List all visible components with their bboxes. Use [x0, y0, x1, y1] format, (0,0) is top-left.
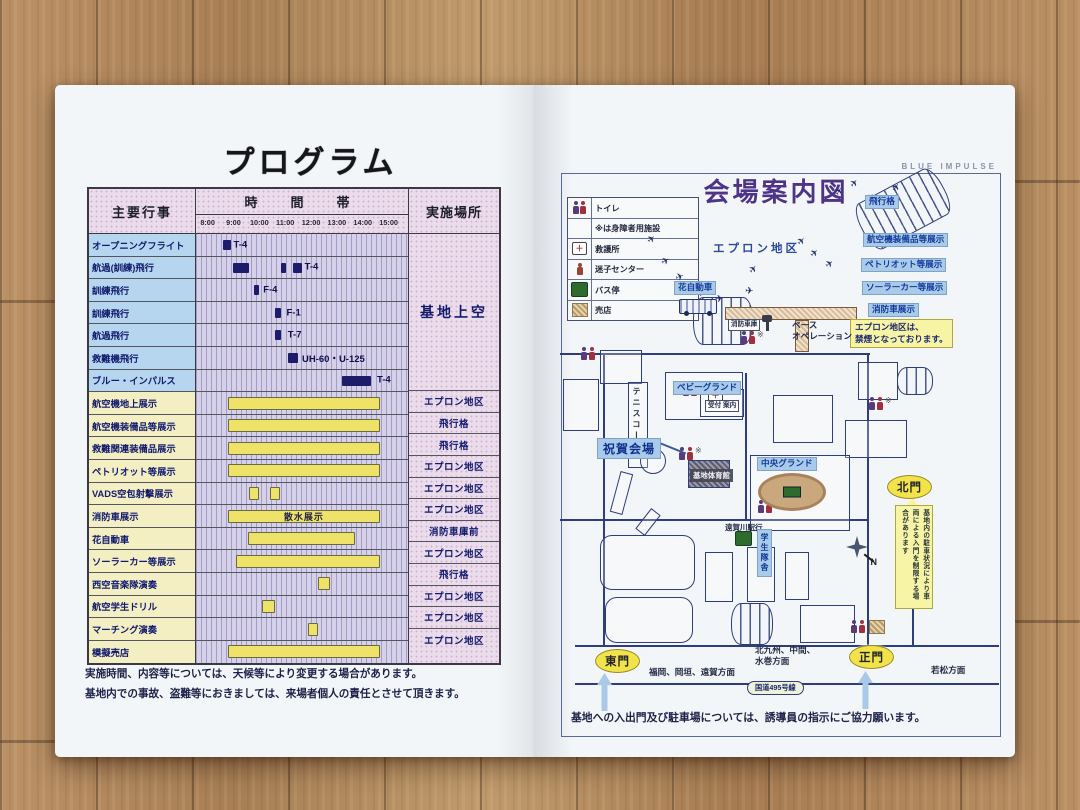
- compass-north-label: N: [871, 557, 878, 567]
- gantt-cell: T-4: [196, 257, 408, 280]
- track-infield-marker: [783, 487, 801, 498]
- program-footnotes: 実施時間、内容等については、天候等により変更する場合があります。 基地内での事故…: [85, 665, 525, 704]
- table-body: オープニングフライト航過(訓練)飛行訓練飛行訓練飛行航過飛行救難機飛行ブルー・イ…: [89, 234, 499, 663]
- toilet-icon: ※: [679, 447, 702, 460]
- map-building: [800, 605, 855, 643]
- gantt-cell: [196, 437, 408, 460]
- toilet-icon: [851, 620, 865, 633]
- disabled-access-mark: ※: [695, 447, 702, 455]
- event-label: VADS空包射撃展示: [89, 483, 195, 506]
- map-page: BLUE IMPULSE 会場案内図 トイレ※は身障者用施設＋救護所迷子センター…: [545, 157, 1007, 749]
- gantt-bar: [228, 645, 379, 658]
- map-bottom-note: 基地への入出門及び駐車場については、誘導員の指示にご協力願います。: [571, 709, 999, 725]
- time-tick: 8:00: [200, 218, 215, 227]
- map-label: エプロン地区: [713, 240, 800, 256]
- gantt-bar: [293, 263, 302, 273]
- program-page: プログラム 主要行事 時 間 帯 8:009:0010:0011:0012:00…: [83, 135, 538, 747]
- airplane-icon: ✈: [809, 247, 822, 260]
- map-label: 祝賀会場: [597, 438, 661, 459]
- time-tick: 12:00: [302, 218, 321, 227]
- aircraft-note: T-4: [305, 262, 319, 273]
- location-cell: エプロン地区: [409, 478, 499, 500]
- gantt-bar: [254, 285, 259, 295]
- person-male-glyph: [869, 397, 875, 410]
- person-male-glyph: [581, 347, 587, 360]
- map-label: 航空機装備品等展示: [863, 233, 948, 247]
- gantt-bar: [249, 487, 259, 500]
- person-female-glyph: [877, 397, 883, 410]
- location-cell: 飛行格: [409, 413, 499, 435]
- gantt-bar: [275, 330, 281, 340]
- gantt-cell: F-1: [196, 302, 408, 325]
- map-label: 国道495号線: [747, 681, 804, 695]
- event-label: ソーラーカー等展示: [89, 550, 195, 573]
- map-building: [705, 552, 733, 602]
- map-label: ソーラーカー等展示: [862, 281, 947, 295]
- location-cell: 飛行格: [409, 564, 499, 586]
- map-label: 基地内の駐車状況により車両による入門を制限する場合があります: [895, 505, 933, 609]
- gantt-bar: [281, 263, 286, 273]
- gantt-bar: [318, 577, 331, 590]
- compass-icon: N: [843, 533, 877, 567]
- gantt-cell: [196, 460, 408, 483]
- gantt-cell: [196, 550, 408, 573]
- airplane-icon: ✈: [849, 178, 862, 191]
- map-building: [773, 395, 833, 443]
- water-tower-icon: [761, 315, 773, 331]
- event-label: 航空機装備品等展示: [89, 415, 195, 438]
- map-label: ベース オペレーション: [792, 320, 852, 342]
- event-label: 救難機飛行: [89, 347, 195, 370]
- event-label: 模擬売店: [89, 641, 195, 664]
- airplane-icon: ✈: [660, 256, 672, 269]
- gantt-cell: [196, 618, 408, 641]
- program-booklet: プログラム 主要行事 時 間 帯 8:009:0010:0011:0012:00…: [55, 85, 1015, 757]
- time-tick: 10:00: [250, 218, 269, 227]
- gantt-cell: [196, 392, 408, 415]
- gantt-cell: [196, 415, 408, 438]
- aircraft-note: T-7: [288, 330, 302, 341]
- program-table: 主要行事 時 間 帯 8:009:0010:0011:0012:0013:001…: [87, 187, 501, 665]
- airplane-icon: ✈: [834, 186, 847, 198]
- disabled-access-mark: ※: [757, 331, 764, 339]
- person-female-glyph: [749, 331, 755, 344]
- gantt-bar: [262, 600, 275, 613]
- event-label: 消防車展示: [89, 505, 195, 528]
- time-tick: 11:00: [276, 218, 294, 227]
- floor-plank-joint: [0, 740, 55, 743]
- person-male-glyph: [741, 331, 747, 344]
- event-label: 花自動車: [89, 528, 195, 551]
- event-label: ペトリオット等展示: [89, 460, 195, 483]
- event-label: オープニングフライト: [89, 234, 195, 257]
- aircraft-note: F-1: [286, 307, 300, 318]
- location-cell: エプロン地区: [409, 391, 499, 413]
- gantt-bar: [228, 397, 379, 410]
- event-label: 航過飛行: [89, 324, 195, 347]
- gantt-cell: [196, 483, 408, 506]
- map-label: 学生隊舎: [757, 529, 772, 577]
- map-label: 花自動車: [674, 281, 716, 295]
- gantt-cell: [196, 573, 408, 596]
- airplane-icon: ✈: [824, 258, 837, 271]
- gantt-bar: [270, 487, 280, 500]
- location-cell: エプロン地区: [409, 629, 499, 651]
- gantt-bar: [228, 419, 379, 432]
- location-cell: エプロン地区: [409, 456, 499, 478]
- map-building: [610, 471, 633, 515]
- bar-inline-label: 散水展示: [284, 510, 324, 523]
- event-label: 訓練飛行: [89, 302, 195, 325]
- airplane-icon: ✈: [646, 233, 659, 246]
- toilet-icon: ※: [869, 397, 892, 410]
- time-tick: 15:00: [379, 218, 398, 227]
- gate-entry-arrow: [858, 671, 873, 709]
- map-building: [605, 597, 693, 643]
- gantt-bar: [228, 464, 379, 477]
- table-header: 主要行事 時 間 帯 8:009:0010:0011:0012:0013:001…: [89, 189, 499, 234]
- floor-plank-joint: [0, 300, 55, 303]
- gantt-cell: [196, 528, 408, 551]
- gantt-cell: [196, 641, 408, 664]
- road-line: [603, 355, 605, 647]
- shop-icon: [869, 620, 885, 634]
- map-label: 若松方面: [931, 665, 965, 676]
- gate-badge: 正門: [849, 645, 894, 669]
- person-female-glyph: [859, 620, 865, 633]
- map-label: 福岡、岡垣、遠賀方面: [649, 667, 735, 678]
- floor-plank-joint: [1015, 180, 1080, 183]
- toilet-icon: [581, 347, 595, 360]
- header-time-band: 時 間 帯: [196, 189, 408, 215]
- gantt-bar: [248, 532, 355, 545]
- gate-badge: 東門: [595, 649, 640, 673]
- map-building: [845, 420, 907, 458]
- disabled-access-mark: ※: [885, 397, 892, 405]
- map-label: ベビーグランド: [673, 381, 741, 395]
- event-label: ブルー・インパルス: [89, 370, 195, 393]
- toilet-icon: ※: [741, 331, 764, 344]
- gantt-cell: T-4: [196, 370, 408, 393]
- event-label: 航過(訓練)飛行: [89, 257, 195, 280]
- airplane-icon: ✈: [745, 287, 753, 297]
- header-main-events: 主要行事: [89, 189, 196, 233]
- gate-badge: 北門: [887, 475, 932, 499]
- map-label: 基地体育館: [690, 469, 733, 482]
- gantt-cell: F-4: [196, 279, 408, 302]
- event-label: 航空学生ドリル: [89, 596, 195, 619]
- time-tick: 9:00: [226, 218, 241, 227]
- location-cell: 基地上空: [409, 234, 499, 391]
- gantt-bar: [288, 353, 298, 363]
- gantt-cell: UH-60・U-125: [196, 347, 408, 370]
- time-axis: 8:009:0010:0011:0012:0013:0014:0015:00: [196, 215, 408, 233]
- person-female-glyph: [687, 447, 693, 460]
- person-male-glyph: [851, 620, 857, 633]
- gantt-bar: [233, 263, 249, 273]
- map-building: [600, 350, 642, 384]
- map-building: [858, 362, 898, 400]
- gantt-bar: [342, 376, 370, 386]
- location-cell: 消防車庫前: [409, 521, 499, 543]
- gantt-bar: [223, 240, 231, 250]
- location-cell: エプロン地区: [409, 607, 499, 629]
- gantt-bar: [275, 308, 281, 318]
- map-building: [635, 508, 660, 536]
- event-label: 救難関連装備品展示: [89, 437, 195, 460]
- gantt-cell: [196, 596, 408, 619]
- hangar-building: [897, 367, 933, 395]
- map-building: [563, 379, 599, 431]
- gantt-bar: 散水展示: [228, 510, 379, 523]
- person-female-glyph: [589, 347, 595, 360]
- location-cell: 飛行格: [409, 434, 499, 456]
- aircraft-note: UH-60・U-125: [302, 351, 365, 365]
- event-label: マーチング演奏: [89, 618, 195, 641]
- map-label: 中央グランド: [757, 457, 817, 471]
- aircraft-note: T-4: [377, 375, 391, 386]
- gantt-cell: T-7: [196, 324, 408, 347]
- parade-float-icon: [679, 299, 717, 314]
- location-cell: エプロン地区: [409, 586, 499, 608]
- event-label: 訓練飛行: [89, 279, 195, 302]
- road-line: [745, 373, 747, 519]
- gantt-bar: [308, 623, 317, 636]
- program-title: プログラム: [83, 137, 538, 182]
- event-label: 西空音楽隊演奏: [89, 573, 195, 596]
- location-cell: エプロン地区: [409, 499, 499, 521]
- event-label: 航空機地上展示: [89, 392, 195, 415]
- gantt-bar: [236, 555, 379, 568]
- time-tick: 13:00: [328, 218, 347, 227]
- map-layer: ✈✈✈✈✈✈✈✈✈✈✈✈✈✈※※※※＋Nエプロン地区飛行格航空機装備品等展示ペト…: [545, 157, 1007, 749]
- bus-stop-icon: [735, 531, 752, 546]
- header-location: 実施場所: [409, 189, 499, 233]
- map-label: エプロン地区は、 禁煙となっております。: [850, 319, 953, 348]
- aircraft-note: F-4: [263, 284, 277, 295]
- map-label: 飛行格: [865, 195, 899, 209]
- gantt-cell: 散水展示: [196, 505, 408, 528]
- gantt-bar: [228, 442, 379, 455]
- floor-plank-joint: [1015, 620, 1080, 623]
- location-cell: エプロン地区: [409, 542, 499, 564]
- map-label: 消防車展示: [868, 303, 919, 317]
- airplane-icon: ✈: [748, 264, 761, 277]
- map-building: [600, 535, 695, 590]
- hangar-building: [731, 603, 773, 645]
- map-label: 北九州、中間、 水巻方面: [755, 645, 815, 667]
- map-building: [785, 552, 809, 600]
- gantt-cell: T-4: [196, 234, 408, 257]
- map-label: 消防車庫: [728, 319, 760, 331]
- ground-track-oval: [758, 473, 826, 511]
- gate-entry-arrow: [597, 673, 612, 711]
- aircraft-note: T-4: [233, 239, 247, 250]
- time-tick: 14:00: [353, 218, 372, 227]
- map-label: 受付 案内: [705, 400, 739, 412]
- map-label: ペトリオット等展示: [861, 258, 946, 272]
